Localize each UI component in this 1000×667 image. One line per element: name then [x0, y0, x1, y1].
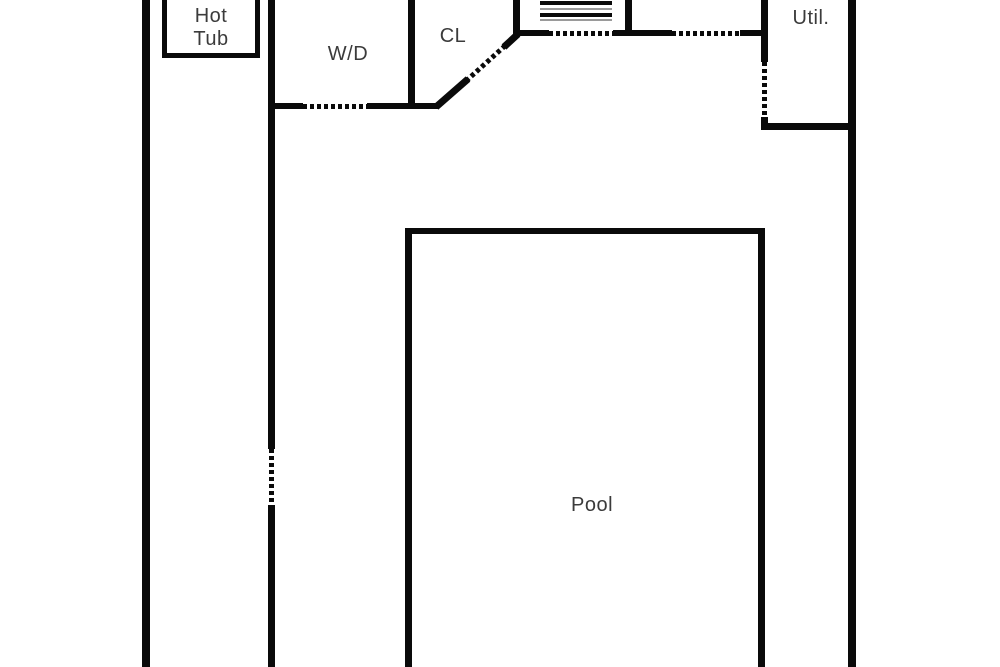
- shelf-line-top: [540, 1, 612, 5]
- wall-pool-left: [405, 228, 412, 667]
- shelf-line-bottom: [540, 13, 612, 17]
- door-opening-top-hall: [672, 31, 740, 36]
- door-opening-utility: [762, 62, 767, 117]
- hot-tub-fixture: Hot Tub: [162, 0, 260, 58]
- hot-tub-label-line2: Tub: [193, 28, 228, 51]
- shelf-line-bottom-shadow: [540, 19, 612, 21]
- utility-label: Util.: [784, 7, 838, 30]
- wall-top-run-1: [513, 30, 549, 36]
- wall-pool-top: [405, 228, 765, 234]
- hot-tub-label-line1: Hot: [195, 5, 228, 28]
- pool-label: Pool: [562, 494, 622, 517]
- wall-top-run-3: [740, 30, 761, 36]
- laundry-label: W/D: [320, 43, 376, 66]
- closet-label: CL: [433, 25, 473, 48]
- floor-plan: Hot Tub W/D CL Util. Pool: [0, 0, 1000, 667]
- door-opening-closet-diagonal: [466, 44, 507, 81]
- wall-closet-diagonal: [0, 0, 1000, 667]
- door-opening-shelf-nook: [549, 31, 613, 36]
- wall-pool-right: [758, 228, 765, 667]
- shelf-line-top-shadow: [540, 8, 612, 10]
- wall-utility-bottom: [761, 123, 856, 130]
- wall-top-run-2: [613, 30, 672, 36]
- wall-utility-left-upper: [761, 0, 768, 62]
